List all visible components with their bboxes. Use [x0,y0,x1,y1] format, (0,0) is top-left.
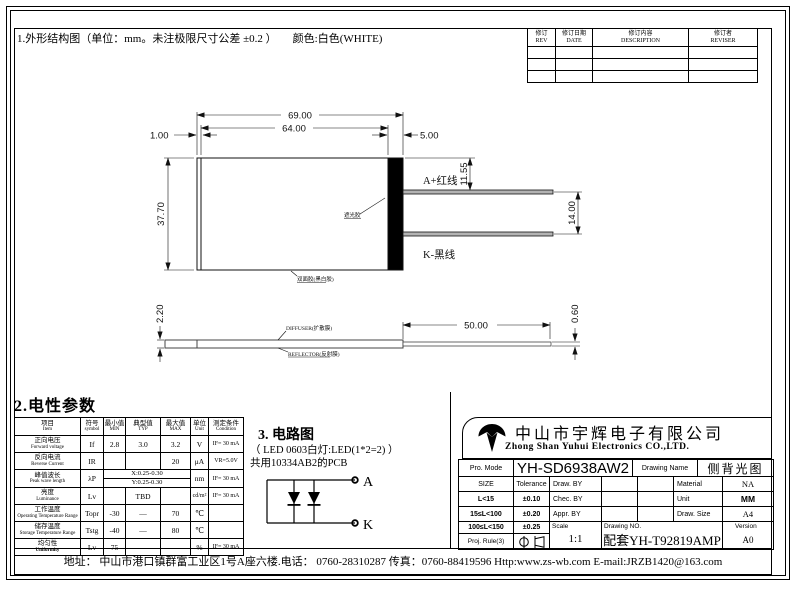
size-label: SIZE [459,477,514,492]
version-cell: Version A0 [723,522,773,549]
anode-label: A [363,475,374,490]
draw-size-label: Draw. Size [674,507,723,522]
revision-empty-row [528,47,758,59]
drawing-no-value: 配套YH-T92819AMP [603,530,721,549]
unit-label: Unit [674,492,723,507]
version-value: A0 [743,535,754,545]
company-logo [476,423,508,453]
chec-by-label: Chec. BY [550,492,602,507]
dim-height: 37.70 [156,202,167,226]
diffuser-label: DIFFUSER(扩散膜) [286,324,332,332]
tolerance-label: Tolerance [514,477,550,492]
led-diode-symbols [288,492,321,506]
wire-k [403,232,553,236]
dim-wire-a-offset: 11.55 [459,162,470,185]
circuit-section-title: 3. 电路图 [258,424,314,444]
drawing-name-label: Drawing Name [633,460,698,477]
wire-k-label: K-黑线 [423,248,456,261]
reflector-label: REFLECTOR(反射膜) [288,350,340,358]
electrical-table: 项目Item 符号symbol 最小值MIN 典型值TYP 最大值MAX 单位U… [14,417,244,556]
size-range-1: L<15 [459,492,514,507]
electrical-row-peak-wavelength: 峰值波长Peak wave length λP X:0.25-0.30 Y:0.… [15,470,244,488]
electrical-row-reverse-current: 反向电流Reverse Current IR 20 μA VR=5.0V [15,453,244,470]
rev-header-date: 修订日期DATE [556,29,593,47]
size-range-2: 15≤L<100 [459,507,514,522]
outline-note: 1.外形结构图（单位：mm。未注极限尺寸公差 ±0.2 ） [17,30,277,46]
footer-address: 地址： 中山市港口镇群富工业区1号A座六楼.电话： 0760-28310287 … [14,549,772,575]
dim-bar-width: 5.00 [420,131,439,142]
backlight-outline [197,158,403,270]
pro-mode-value: YH-SD6938AW2 [514,460,633,477]
electrical-row-storage-temp: 储存温度Storage Temperature Range Tstg -40 —… [15,522,244,539]
cathode-label: K [363,518,373,533]
company-name-en: Zhong Shan Yuhui Electronics CO.,LTD. [505,442,689,452]
projection-symbol-cell [514,534,550,549]
electrical-section-title: 2.电性参数 [14,392,96,416]
shading-tape-label: 遮光胶 [344,211,361,219]
signature-cell [602,477,638,492]
electrical-row-luminance: 亮度Luminance Lv TBD cd/m² IF= 30 mA [15,488,244,505]
projection-symbol [517,536,547,548]
wire-a [403,190,553,194]
draw-size-value: A4 [723,507,773,522]
signature-cell [638,507,674,522]
signature-cell [602,492,638,507]
side-view-tail [403,342,551,346]
color-note: 颜色:白色(WHITE) [293,30,383,46]
bottom-tape-label: 双面胶(黑白胶) [297,275,334,283]
top-note: 1.外形结构图（单位：mm。未注极限尺寸公差 ±0.2 ） 颜色:白色(WHIT… [17,30,382,46]
material-value: NA [723,477,773,492]
appr-by-label: Appr. BY [550,507,602,522]
dim-body-width: 64.00 [282,124,306,135]
signature-cell [602,507,638,522]
rev-header-rev: 修订REV [528,29,556,47]
dim-total-width: 69.00 [288,111,312,122]
dim-left-edge: 1.00 [150,131,169,142]
revision-empty-row [528,59,758,71]
electrical-row-forward-voltage: 正向电压Forward voltage If 2.8 3.0 3.2 V IF=… [15,436,244,453]
version-label: Version [735,523,757,530]
unit-value: MM [723,492,773,507]
company-box: 中山市宇辉电子有限公司 Zhong Shan Yuhui Electronics… [462,417,772,459]
dim-wire-spacing: 14.00 [567,201,578,225]
led-bar-black [388,158,403,270]
proj-rule-label: Proj. Rule(3) [459,534,514,549]
circuit-diagram: A K [262,470,392,540]
dim-thickness: 2.20 [155,305,166,324]
pro-mode-label: Pro. Mode [459,460,514,477]
material-label: Material [674,477,723,492]
dim-tail-thickness: 0.60 [570,305,581,324]
drawing-no-label: Drawing NO. [604,523,641,530]
company-name-cn: 中山市宇辉电子有限公司 [515,420,724,444]
scale-cell: Scale 1:1 [550,522,602,549]
scale-value: 1:1 [568,533,582,545]
signature-cell [638,477,674,492]
tolerance-3: ±0.25 [514,522,550,534]
electrical-header-row: 项目Item 符号symbol 最小值MIN 典型值TYP 最大值MAX 单位U… [15,418,244,436]
tolerance-2: ±0.20 [514,507,550,522]
title-block: Pro. Mode YH-SD6938AW2 Drawing Name 侧背光图… [458,459,774,550]
wire-a-label: A+红线 [423,174,458,187]
section-divider-vertical [450,392,451,548]
side-view-body [165,340,403,348]
revision-table: 修订REV 修订日期DATE 修订内容DESCRIPTION 修订者REVISE… [527,28,758,83]
tolerance-1: ±0.10 [514,492,550,507]
drawing-no-cell: Drawing NO. 配套YH-T92819AMP [602,522,723,549]
electrical-row-operating-temp: 工作温度Operating Temperature Range Topr -30… [15,505,244,522]
rev-header-reviser: 修订者REVISER [689,29,758,47]
circuit-subtitle-2: 共用10334AB2的PCB [250,455,347,470]
drawing-name-value: 侧背光图 [698,460,773,477]
revision-empty-row [528,71,758,83]
rev-header-description: 修订内容DESCRIPTION [593,29,689,47]
size-range-3: 100≤L<150 [459,522,514,534]
scale-label: Scale [552,523,568,530]
outline-drawing: 69.00 64.00 1.00 5.00 37.70 11.55 14.00 … [14,95,772,392]
drawing-sheet: 1.外形结构图（单位：mm。未注极限尺寸公差 ±0.2 ） 颜色:白色(WHIT… [0,0,800,608]
signature-cell [638,492,674,507]
dim-wire-length: 50.00 [464,321,488,332]
draw-by-label: Draw. BY [550,477,602,492]
